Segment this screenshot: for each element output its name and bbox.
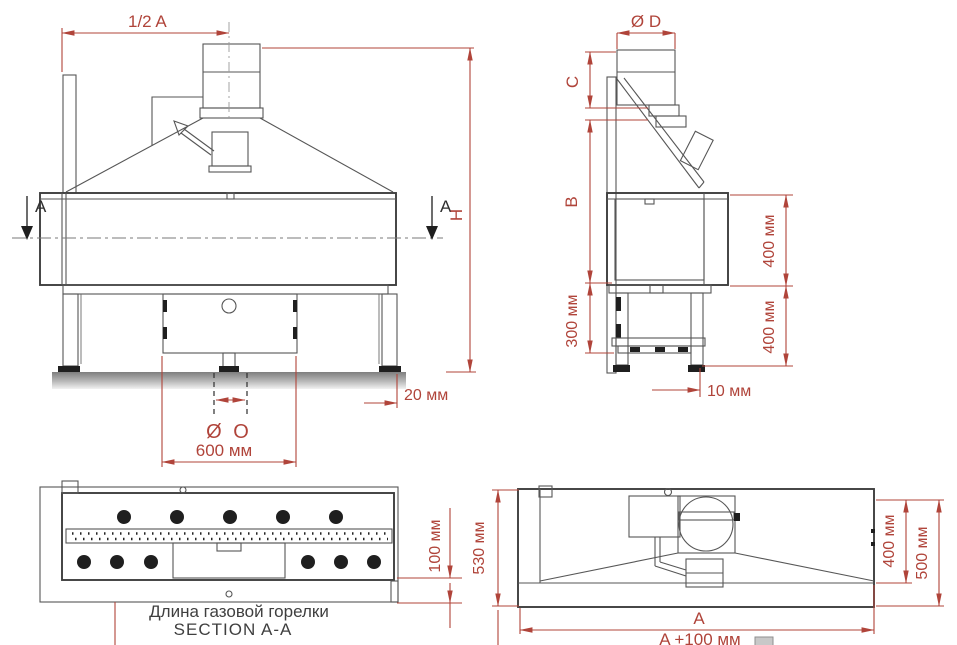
front-chimney-collar — [200, 108, 263, 118]
section-burner-tray — [173, 543, 285, 578]
dim-500mm-label: 500 мм — [914, 526, 931, 579]
dim-c-label: C — [563, 76, 582, 88]
dim-20mm-label: 20 мм — [404, 387, 448, 404]
dim-a-plus-100mm-label: A +100 мм — [659, 630, 741, 645]
front-chimney — [203, 44, 260, 108]
side-right-leg — [691, 293, 703, 365]
front-bottom-rail — [63, 285, 388, 294]
top-outline — [518, 489, 874, 607]
top-dimensions: 530 мм 400 мм 500 мм A A +100 мм — [471, 490, 944, 645]
dim-300mm-label: 300 мм — [564, 294, 581, 347]
side-body — [607, 193, 728, 285]
section-burner-holes-top — [117, 510, 343, 524]
front-firebox-knob — [222, 299, 236, 313]
front-view: A A — [12, 44, 452, 418]
dim-530mm-label: 530 мм — [471, 521, 488, 574]
dim-dia-d-label: Ø D — [631, 12, 661, 31]
dim-400mm-label: 400 мм — [881, 514, 898, 567]
dim-400mm-upper-label: 400 мм — [761, 214, 778, 267]
front-hood-right-slope — [260, 118, 393, 192]
front-right-leg — [382, 294, 397, 366]
front-hood-step — [152, 97, 203, 146]
top-chimney-circle — [679, 497, 733, 551]
side-view — [607, 50, 728, 373]
side-hood-brace — [617, 78, 704, 188]
gas-burner-strip — [66, 529, 392, 543]
top-hood-box — [629, 496, 680, 537]
side-door — [615, 199, 704, 280]
section-caption-en: SECTION A-A — [174, 620, 293, 639]
dim-pipe-diameter-label: Ø O — [206, 421, 252, 443]
front-firebox — [163, 294, 297, 353]
ground-shading — [52, 372, 406, 389]
technical-drawing: A A 1/2 A H — [0, 0, 957, 645]
side-dimensions: Ø D C B 300 мм 400 мм 400 мм 10 мм — [562, 12, 793, 400]
drawing-canvas: A A 1/2 A H — [0, 0, 957, 645]
front-body — [40, 193, 396, 285]
side-hood-box — [680, 131, 713, 169]
dim-10mm-label: 10 мм — [707, 383, 751, 400]
dim-400mm-lower-label: 400 мм — [761, 300, 778, 353]
dim-b-label: B — [562, 196, 581, 207]
section-view — [40, 481, 398, 602]
section-cut-marker-left: A — [21, 196, 47, 240]
section-caption-ru: Длина газовой горелки — [149, 602, 329, 621]
section-outer — [40, 487, 398, 602]
front-left-leg — [63, 294, 78, 366]
dim-a-label: A — [693, 609, 705, 628]
section-burner-holes-bottom — [77, 555, 381, 569]
front-hood-strut — [174, 121, 214, 155]
top-hood-right-slope — [735, 553, 874, 581]
front-back-panel — [63, 75, 76, 193]
dim-h-label: H — [447, 209, 466, 221]
front-dimensions: 1/2 A H 20 мм Ø O 600 мм — [62, 12, 476, 467]
front-drain-pipe — [223, 353, 235, 367]
top-view — [518, 486, 875, 607]
dim-half-a-label: 1/2 A — [128, 12, 167, 31]
front-hood-box — [212, 132, 248, 166]
dim-600mm-label: 600 мм — [196, 441, 252, 460]
side-rail — [609, 285, 711, 293]
front-hood-left-slope — [66, 118, 203, 192]
logo-fragment — [755, 637, 773, 645]
section-marker-left-label: A — [35, 197, 47, 216]
side-chimney — [617, 50, 675, 105]
dim-100mm-label: 100 мм — [427, 519, 444, 572]
